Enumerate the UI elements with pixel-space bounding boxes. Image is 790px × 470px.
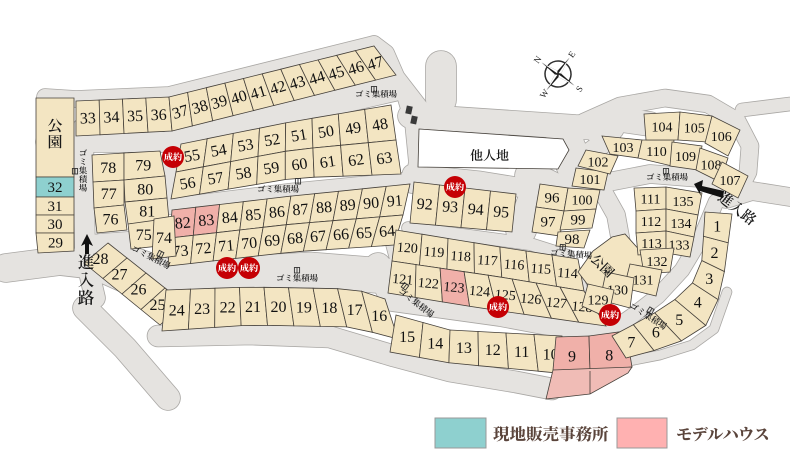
svg-text:62: 62	[347, 151, 365, 170]
svg-text:89: 89	[339, 197, 356, 215]
svg-text:31: 31	[48, 199, 63, 215]
svg-text:79: 79	[135, 157, 151, 174]
svg-text:95: 95	[493, 204, 510, 222]
svg-text:107: 107	[720, 174, 741, 189]
svg-text:115: 115	[530, 262, 551, 278]
svg-text:120: 120	[396, 241, 418, 257]
svg-text:66: 66	[332, 226, 349, 244]
svg-text:131: 131	[633, 273, 654, 288]
svg-text:100: 100	[572, 193, 593, 208]
svg-text:122: 122	[417, 276, 439, 293]
svg-text:80: 80	[137, 181, 153, 198]
svg-text:8: 8	[605, 347, 613, 364]
svg-text:65: 65	[355, 224, 372, 242]
svg-text:20: 20	[271, 299, 287, 316]
svg-text:15: 15	[399, 329, 415, 346]
svg-text:58: 58	[234, 164, 252, 183]
svg-text:51: 51	[290, 126, 309, 146]
svg-text:126: 126	[520, 292, 542, 309]
svg-text:70: 70	[241, 235, 258, 253]
svg-text:91: 91	[386, 192, 403, 210]
svg-text:5: 5	[675, 312, 683, 329]
svg-text:99: 99	[571, 213, 586, 229]
svg-text:25: 25	[150, 297, 166, 314]
svg-text:82: 82	[174, 214, 191, 232]
svg-text:4: 4	[694, 294, 702, 311]
svg-text:69: 69	[263, 232, 280, 250]
svg-text:24: 24	[169, 302, 185, 319]
svg-text:3: 3	[705, 271, 713, 288]
svg-text:135: 135	[673, 195, 694, 210]
svg-text:77: 77	[101, 186, 117, 203]
svg-text:72: 72	[195, 240, 212, 258]
svg-text:18: 18	[321, 300, 337, 317]
svg-text:35: 35	[127, 108, 144, 126]
svg-text:68: 68	[286, 230, 303, 248]
svg-text:28: 28	[93, 251, 109, 268]
svg-text:119: 119	[423, 245, 444, 261]
svg-text:116: 116	[503, 257, 524, 273]
svg-text:84: 84	[221, 209, 238, 227]
svg-text:61: 61	[319, 153, 337, 172]
svg-text:32: 32	[48, 180, 63, 196]
svg-text:64: 64	[378, 223, 395, 241]
svg-text:56: 56	[178, 174, 196, 193]
svg-text:103: 103	[613, 141, 634, 156]
svg-text:9: 9	[568, 348, 576, 365]
svg-text:14: 14	[427, 336, 443, 353]
svg-text:83: 83	[198, 212, 215, 230]
svg-text:85: 85	[245, 206, 262, 224]
svg-text:106: 106	[711, 130, 732, 145]
svg-text:102: 102	[588, 155, 609, 170]
svg-text:105: 105	[684, 121, 705, 136]
svg-text:117: 117	[477, 253, 498, 269]
svg-text:88: 88	[315, 199, 332, 217]
svg-text:17: 17	[347, 302, 363, 319]
svg-text:19: 19	[296, 300, 312, 317]
svg-text:71: 71	[218, 237, 235, 255]
svg-text:16: 16	[371, 308, 387, 325]
svg-text:52: 52	[263, 131, 282, 151]
svg-text:49: 49	[344, 119, 363, 139]
svg-text:101: 101	[580, 173, 601, 188]
svg-text:36: 36	[150, 107, 167, 125]
svg-text:7: 7	[627, 335, 635, 352]
svg-text:1: 1	[713, 219, 721, 236]
svg-text:33: 33	[80, 110, 97, 128]
svg-text:2: 2	[711, 245, 719, 262]
svg-text:86: 86	[268, 204, 285, 222]
svg-text:94: 94	[467, 201, 484, 219]
svg-text:6: 6	[652, 325, 660, 342]
svg-text:134: 134	[671, 217, 692, 232]
svg-text:34: 34	[103, 109, 120, 127]
svg-text:12: 12	[485, 342, 501, 359]
svg-text:118: 118	[450, 249, 471, 265]
svg-text:48: 48	[371, 115, 390, 135]
svg-text:124: 124	[468, 284, 490, 301]
svg-text:11: 11	[514, 344, 529, 361]
svg-text:63: 63	[375, 149, 393, 168]
svg-text:104: 104	[652, 120, 673, 135]
svg-text:67: 67	[309, 228, 326, 246]
svg-text:112: 112	[641, 215, 661, 230]
svg-text:30: 30	[48, 217, 63, 233]
svg-text:53: 53	[236, 136, 255, 156]
svg-text:74: 74	[156, 230, 172, 247]
svg-text:97: 97	[541, 215, 557, 231]
svg-text:57: 57	[206, 169, 224, 188]
svg-text:110: 110	[646, 145, 666, 160]
svg-text:121: 121	[392, 272, 414, 289]
svg-text:21: 21	[245, 299, 261, 316]
svg-text:92: 92	[416, 196, 433, 214]
svg-text:54: 54	[209, 141, 228, 161]
svg-text:29: 29	[48, 236, 63, 252]
svg-text:81: 81	[139, 203, 155, 220]
svg-text:75: 75	[136, 227, 152, 244]
svg-text:98: 98	[565, 232, 580, 248]
svg-text:109: 109	[675, 150, 696, 165]
svg-text:114: 114	[557, 266, 578, 282]
svg-text:23: 23	[194, 301, 210, 318]
svg-text:93: 93	[442, 198, 459, 216]
svg-text:78: 78	[100, 160, 116, 177]
svg-text:76: 76	[103, 211, 119, 228]
svg-text:59: 59	[262, 159, 280, 178]
svg-text:90: 90	[362, 195, 379, 213]
svg-text:55: 55	[183, 147, 202, 167]
svg-text:87: 87	[292, 201, 309, 219]
svg-text:127: 127	[545, 295, 567, 312]
svg-text:22: 22	[220, 300, 236, 317]
svg-text:50: 50	[317, 123, 336, 143]
svg-text:13: 13	[456, 340, 472, 357]
svg-text:60: 60	[290, 155, 308, 174]
svg-text:26: 26	[131, 282, 147, 299]
svg-text:96: 96	[545, 191, 561, 207]
svg-text:111: 111	[641, 193, 661, 208]
svg-text:123: 123	[443, 280, 465, 297]
svg-text:27: 27	[112, 266, 128, 283]
